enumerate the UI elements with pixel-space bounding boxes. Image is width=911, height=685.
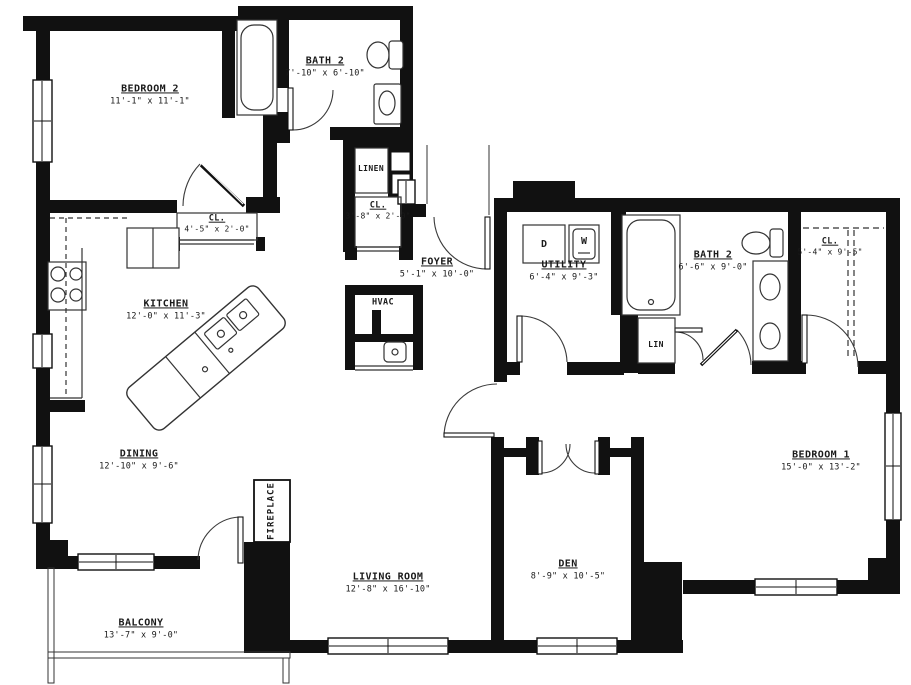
door-den-french-left [538, 441, 570, 474]
bathtub-right-icon [622, 215, 680, 315]
double-vanity-icon [753, 261, 788, 361]
door-balcony [198, 517, 243, 563]
room-label-bath2-upper: BATH 2 7'-10" x 6'-10" [285, 55, 365, 78]
room-label-bath2-right: BATH 2 6'-6" x 9'-0" [678, 249, 747, 272]
room-label-den: DEN 8'-9" x 10'-5" [531, 558, 605, 581]
door-bath2-upper [288, 88, 333, 130]
room-label-foyer: FOYER 5'-1" x 10'-0" [400, 256, 474, 279]
window-living [328, 638, 448, 654]
room-label-closet-hall: CL. 3'-8" x 2'-0" [345, 201, 410, 222]
room-label-living-room: LIVING ROOM 12'-8" x 16'-10" [345, 571, 430, 594]
toilet-right-icon [742, 229, 783, 257]
room-label-linen: LINEN [358, 164, 384, 174]
floor-plan: BEDROOM 2 11'-1" x 11'-1" BATH 2 7'-10" … [0, 0, 911, 685]
refrigerator-icon [127, 228, 179, 268]
bathtub-icon [237, 20, 277, 115]
dryer-label: D [541, 239, 547, 252]
door-closet-bedroom1 [802, 315, 858, 367]
door-den-french-right [566, 441, 599, 474]
stove-icon [48, 262, 86, 310]
door-hall [444, 384, 497, 437]
window-bedroom1-bottom [755, 579, 837, 595]
window-dining-left [33, 446, 52, 523]
washer-label: W [581, 236, 587, 249]
room-label-lin: LIN [648, 340, 664, 350]
room-label-balcony: BALCONY 13'-7" x 9'-0" [104, 617, 178, 640]
room-label-dining: DINING 12'-10" x 9'-6" [99, 448, 179, 471]
room-label-hvac: HVAC [372, 298, 394, 309]
door-utility [517, 316, 567, 362]
room-label-bedroom2: BEDROOM 2 11'-1" x 11'-1" [110, 83, 190, 106]
door-bedroom2 [183, 164, 244, 206]
window-bedroom1-right [885, 413, 901, 520]
room-label-kitchen: KITCHEN 12'-0" x 11'-3" [126, 298, 206, 321]
room-label-closet-bedroom2: CL. 4'-5" x 2'-0" [184, 214, 249, 235]
hvac-closet [355, 342, 413, 370]
entry-recess [427, 145, 489, 215]
room-label-bedroom1: BEDROOM 1 15'-0" x 13'-2" [781, 449, 861, 472]
toilet-icon [367, 41, 403, 69]
window-bedroom2 [33, 80, 52, 162]
pedestal-sink-icon [374, 84, 401, 124]
room-label-utility: UTILITY 6'-4" x 9'-3" [529, 259, 598, 282]
door-bath2-right [701, 330, 751, 365]
window-kitchen [33, 334, 52, 368]
room-label-fireplace: FIREPLACE [266, 482, 277, 540]
room-label-closet-bedroom1: CL. 5'-4" x 9'-5" [797, 237, 862, 258]
window-den [537, 638, 617, 654]
door-lin-closet [675, 328, 703, 360]
window-dining-bottom [78, 554, 154, 570]
